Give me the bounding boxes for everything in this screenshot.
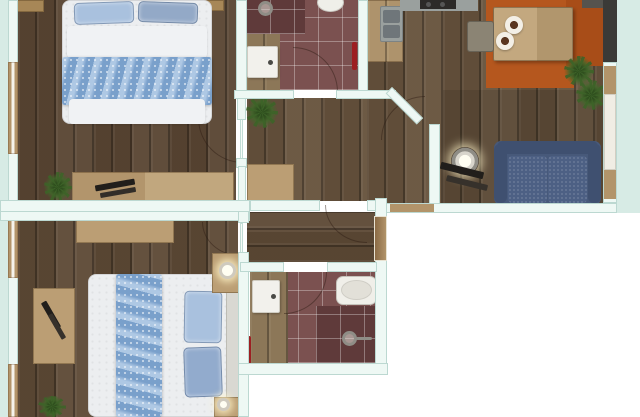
plant-bedroom-top bbox=[44, 172, 72, 202]
wall-bathroom-bottom-top-right bbox=[327, 262, 377, 272]
shower-head-top-icon bbox=[258, 1, 273, 16]
bathtub-basin bbox=[341, 280, 372, 300]
wall-bathroom-top-right bbox=[358, 0, 368, 99]
wall-living-vertical bbox=[429, 124, 440, 206]
sofa-arm-right bbox=[588, 144, 601, 203]
window-right-glass bbox=[604, 94, 616, 170]
dresser-bedroom-bottom bbox=[76, 220, 174, 243]
entry-door bbox=[374, 216, 387, 261]
nightstand-top-left bbox=[14, 0, 44, 12]
bed-top-sheet-lower bbox=[69, 99, 205, 124]
sofa-cushion-1 bbox=[508, 156, 547, 203]
bed-top-pillow-left bbox=[74, 1, 135, 25]
sink-basin-2 bbox=[383, 25, 400, 38]
faucet-bottom-icon bbox=[271, 294, 276, 299]
sofa-arm-left bbox=[494, 144, 507, 203]
wall-bedroom-bottom-right-b bbox=[238, 252, 249, 417]
faucet-top-icon bbox=[268, 60, 273, 65]
towel-rail-top bbox=[352, 42, 357, 70]
bed-top bbox=[62, 0, 212, 124]
window-bedroom-bottom-1 bbox=[8, 216, 18, 278]
plant-hallway bbox=[246, 96, 278, 128]
dining-chair bbox=[467, 21, 494, 52]
wall-bedroom-top-right-c bbox=[238, 166, 246, 202]
shower-area-top bbox=[246, 0, 305, 34]
sofa-back bbox=[497, 141, 598, 154]
chair-top-right bbox=[582, 0, 604, 8]
burner-icon-2 bbox=[440, 2, 445, 7]
wall-divider-b bbox=[0, 211, 250, 221]
bed-bottom-blanket bbox=[116, 274, 162, 417]
wall-bathroom-top-bottom-left bbox=[234, 90, 294, 99]
sideboard-hallway bbox=[247, 164, 294, 201]
wall-corridor-top-left bbox=[250, 200, 320, 211]
window-bedroom-top bbox=[8, 62, 18, 154]
bed-top-sheet-upper bbox=[67, 26, 207, 58]
window-right-wood-bottom bbox=[604, 170, 616, 199]
sofa bbox=[494, 141, 601, 205]
halo-right bbox=[617, 0, 640, 213]
wall-bathroom-bottom-top-left bbox=[240, 262, 284, 272]
bed-bottom-pillow-2 bbox=[183, 346, 223, 397]
wall-bedroom-bottom-right-a bbox=[238, 211, 249, 223]
plant-bedroom-bottom bbox=[38, 396, 66, 417]
bed-bottom bbox=[88, 274, 230, 417]
sink-basin-1 bbox=[383, 10, 400, 23]
window-bedroom-bottom-2 bbox=[8, 364, 18, 417]
plate-2 bbox=[496, 32, 514, 50]
door-leaf-bedroom-top bbox=[240, 119, 243, 163]
cabinet-top-right bbox=[603, 0, 617, 62]
lamp-nightstand-upper bbox=[219, 262, 236, 279]
wall-bathroom-bottom-bottom bbox=[238, 363, 388, 375]
window-living-bottom bbox=[390, 204, 434, 212]
plant-kitchen-2 bbox=[576, 80, 606, 110]
shower-head-bottom-icon bbox=[342, 331, 357, 346]
plate-1 bbox=[505, 16, 523, 34]
burner-icon-1 bbox=[426, 2, 431, 7]
sofa-cushion-2 bbox=[548, 156, 587, 203]
wall-bedroom-top-right-a bbox=[236, 0, 247, 99]
window-right-wood-top bbox=[604, 66, 616, 94]
floor-plan-image bbox=[0, 0, 640, 417]
door-leaf-bedroom-bottom bbox=[240, 223, 243, 253]
bed-bottom-pillow-1 bbox=[184, 291, 223, 344]
shower-arm-bottom bbox=[356, 337, 372, 340]
bed-top-blanket bbox=[62, 57, 212, 105]
bed-top-pillow-right bbox=[138, 1, 199, 24]
lamp-nightstand-lower bbox=[217, 398, 230, 411]
washbasin-top bbox=[247, 46, 278, 78]
